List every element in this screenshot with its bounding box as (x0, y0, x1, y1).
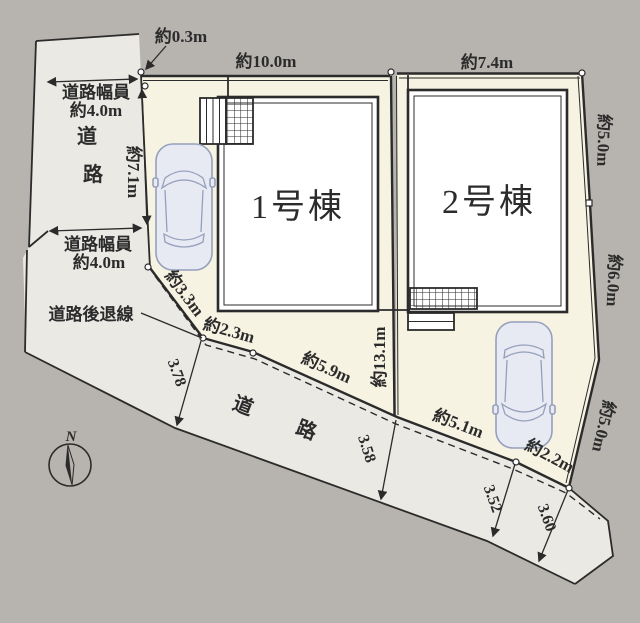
road-label-top-char1: 道 (77, 124, 97, 148)
site-plan: 1号棟 2号棟 (0, 0, 640, 623)
building-2-porch-grid (410, 288, 477, 309)
setback-label: 道路後退線 (49, 304, 134, 324)
building-2-label: 2号棟 (442, 183, 536, 221)
road-width-top-line1: 道路幅員 (62, 82, 130, 102)
north-label: N (65, 429, 78, 445)
dim-offset-top: 約0.3m (155, 26, 207, 46)
road-width-top-line2: 約4.0m (70, 100, 122, 120)
road-width-bottom-line1: 道路幅員 (64, 234, 132, 254)
car-1-icon (153, 144, 215, 270)
dim-top-parcel2: 約7.4m (461, 52, 513, 72)
dim-left-parcel1: 約7.1m (124, 146, 144, 198)
building-1-porch-grid (226, 98, 253, 144)
building-1: 1号棟 (200, 77, 378, 311)
dim-top-parcel1: 約10.0m (236, 51, 297, 71)
building-1-label: 1号棟 (251, 188, 345, 226)
site-plan-canvas: 1号棟 2号棟 (0, 0, 640, 623)
dim-right-upper: 約5.0m (593, 114, 615, 167)
car-2-icon (493, 322, 555, 448)
road-label-top-char2: 路 (83, 162, 104, 186)
dim-center-boundary: 約13.1m (369, 327, 389, 388)
road-width-bottom-line2: 約4.0m (73, 252, 125, 272)
dim-right-middle: 約6.0m (603, 254, 626, 307)
